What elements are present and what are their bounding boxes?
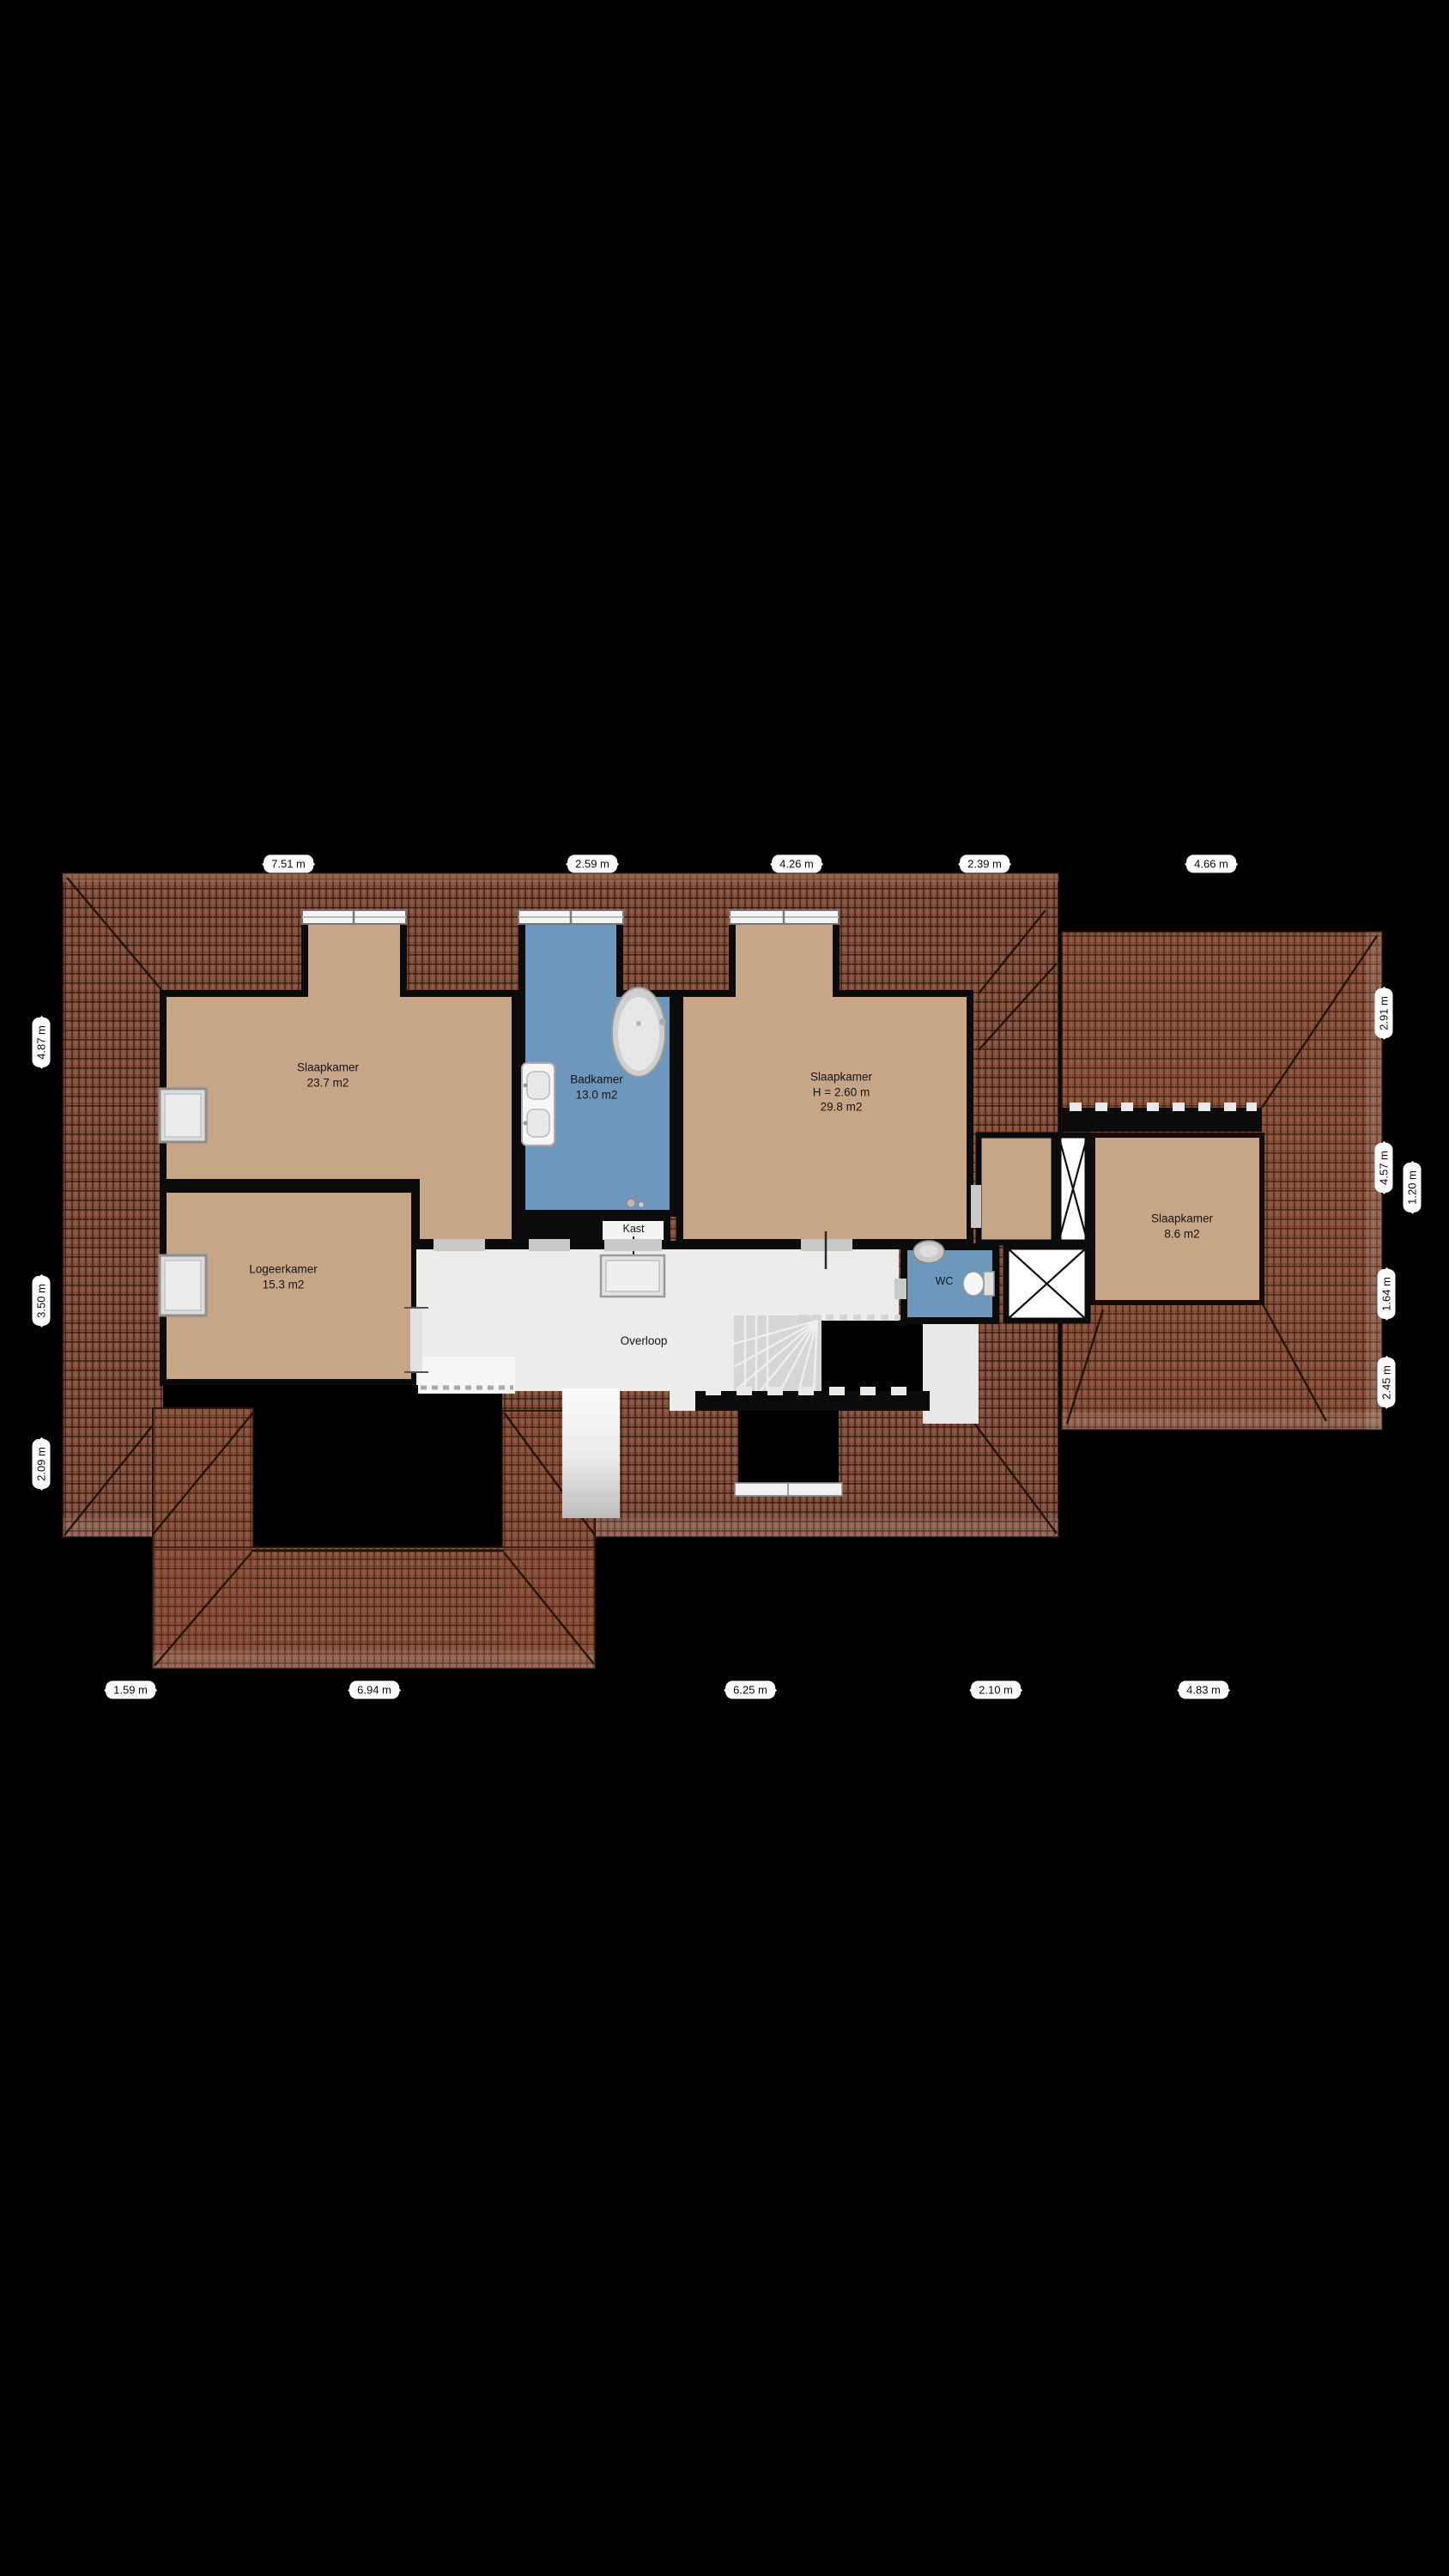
dim-right-4: 1.64 m xyxy=(1378,1269,1396,1319)
flat-dormer-center xyxy=(562,1388,620,1518)
dim-top-5: 4.66 m xyxy=(1186,855,1236,873)
dim-bottom-2: 6.94 m xyxy=(349,1681,399,1699)
dim-right-1: 2.91 m xyxy=(1375,988,1393,1038)
dim-top-1: 7.51 m xyxy=(264,855,313,873)
label-slaapkamer-3: Slaapkamer8.6 m2 xyxy=(1151,1211,1213,1241)
dim-top-2: 2.59 m xyxy=(567,855,617,873)
label-kast: Kast xyxy=(622,1222,644,1236)
label-overloop: Overloop xyxy=(621,1334,668,1349)
dim-left-1: 4.87 m xyxy=(33,1018,51,1067)
label-slaapkamer-2: SlaapkamerH = 2.60 m29.8 m2 xyxy=(810,1070,872,1115)
label-wc: WC xyxy=(936,1274,954,1288)
wc-sink xyxy=(913,1241,944,1263)
dim-top-4: 2.39 m xyxy=(960,855,1009,873)
shaft-upper xyxy=(1058,1135,1088,1242)
bathtub xyxy=(612,987,666,1077)
dim-right-2: 4.57 m xyxy=(1375,1143,1393,1193)
bathroom-vanity xyxy=(522,1063,555,1145)
wc-toilet xyxy=(963,1272,994,1296)
dim-left-3: 2.09 m xyxy=(33,1439,51,1489)
dim-right-3: 1.20 m xyxy=(1404,1163,1422,1212)
dormer-windows xyxy=(302,910,839,924)
dim-bottom-3: 6.25 m xyxy=(725,1681,775,1699)
passage-floor xyxy=(979,1135,1054,1242)
dim-left-2: 3.50 m xyxy=(33,1276,51,1326)
dim-bottom-4: 2.10 m xyxy=(971,1681,1021,1699)
flat-dormer-west xyxy=(418,1357,515,1394)
void-wing-court xyxy=(253,1411,502,1549)
stairwell-void xyxy=(822,1321,923,1393)
flat-roof-strip xyxy=(923,1321,979,1424)
dim-top-3: 4.26 m xyxy=(772,855,822,873)
label-slaapkamer-1: Slaapkamer23.7 m2 xyxy=(297,1060,359,1090)
floorplan-drawing xyxy=(0,0,1449,2576)
label-logeerkamer: Logeerkamer15.3 m2 xyxy=(249,1261,318,1291)
label-badkamer: Badkamer13.0 m2 xyxy=(570,1072,623,1102)
shaft-lower xyxy=(1006,1247,1088,1321)
dim-bottom-1: 1.59 m xyxy=(106,1681,155,1699)
dim-right-5: 2.45 m xyxy=(1378,1358,1396,1407)
dim-bottom-5: 4.83 m xyxy=(1179,1681,1228,1699)
floorplan-canvas: Slaapkamer23.7 m2 Badkamer13.0 m2 Slaapk… xyxy=(0,0,1449,2576)
staircase xyxy=(734,1315,822,1393)
storage-box xyxy=(601,1255,664,1297)
south-dormer xyxy=(735,1411,842,1496)
